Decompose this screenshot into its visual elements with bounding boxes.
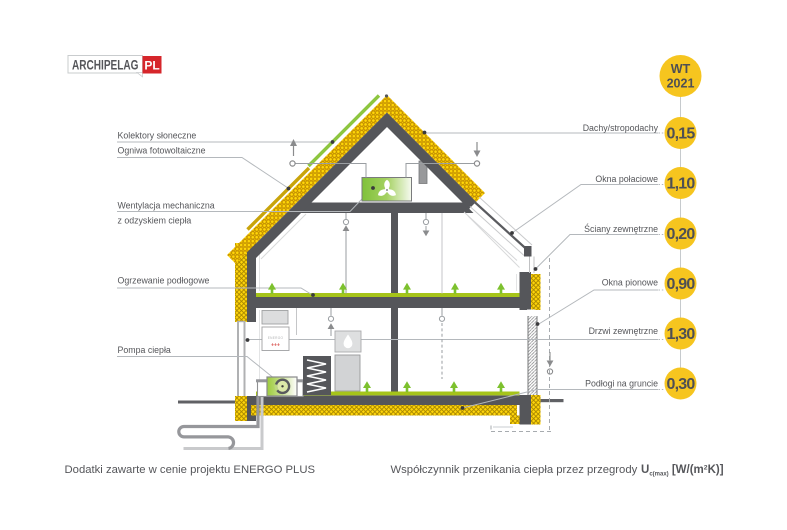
svg-text:Pompa ciepła: Pompa ciepła [118,345,171,355]
svg-text:Okna połaciowe: Okna połaciowe [595,174,658,184]
svg-text:0,15: 0,15 [667,126,696,143]
svg-text:Dodatki zawarte w cenie projek: Dodatki zawarte w cenie projektu ENERGO … [65,464,316,476]
svg-text:Ogrzewanie podłogowe: Ogrzewanie podłogowe [118,276,210,286]
svg-text:Okna pionowe: Okna pionowe [602,278,658,288]
svg-text:Dachy/stropodachy: Dachy/stropodachy [583,123,659,133]
svg-text:Podłogi na gruncie: Podłogi na gruncie [585,379,658,389]
svg-text:PL: PL [144,59,159,73]
svg-text:Ogniwa fotowoltaiczne: Ogniwa fotowoltaiczne [118,146,206,156]
svg-text:Ściany zewnętrzne: Ściany zewnętrzne [584,223,658,234]
svg-text:0,20: 0,20 [667,226,696,243]
svg-text:Drzwi zewnętrzne: Drzwi zewnętrzne [589,326,659,336]
svg-text:Współczynnik przenikania ciepł: Współczynnik przenikania ciepła przez pr… [391,464,638,476]
svg-text:ENERGO: ENERGO [268,336,284,340]
svg-text:Wentylacja mechaniczna: Wentylacja mechaniczna [118,201,215,211]
svg-text:1,10: 1,10 [667,176,696,193]
svg-text:2021: 2021 [667,77,695,91]
svg-text:ARCHIPELAG: ARCHIPELAG [72,58,139,73]
svg-text:z odzyskiem ciepła: z odzyskiem ciepła [118,216,192,226]
svg-text:WT: WT [671,62,691,76]
svg-text:0,90: 0,90 [667,276,696,293]
svg-text:Kolektory słoneczne: Kolektory słoneczne [118,131,197,141]
svg-text:0,30: 0,30 [667,376,696,393]
svg-text:+++: +++ [271,343,280,349]
svg-text:1,30: 1,30 [667,326,696,343]
